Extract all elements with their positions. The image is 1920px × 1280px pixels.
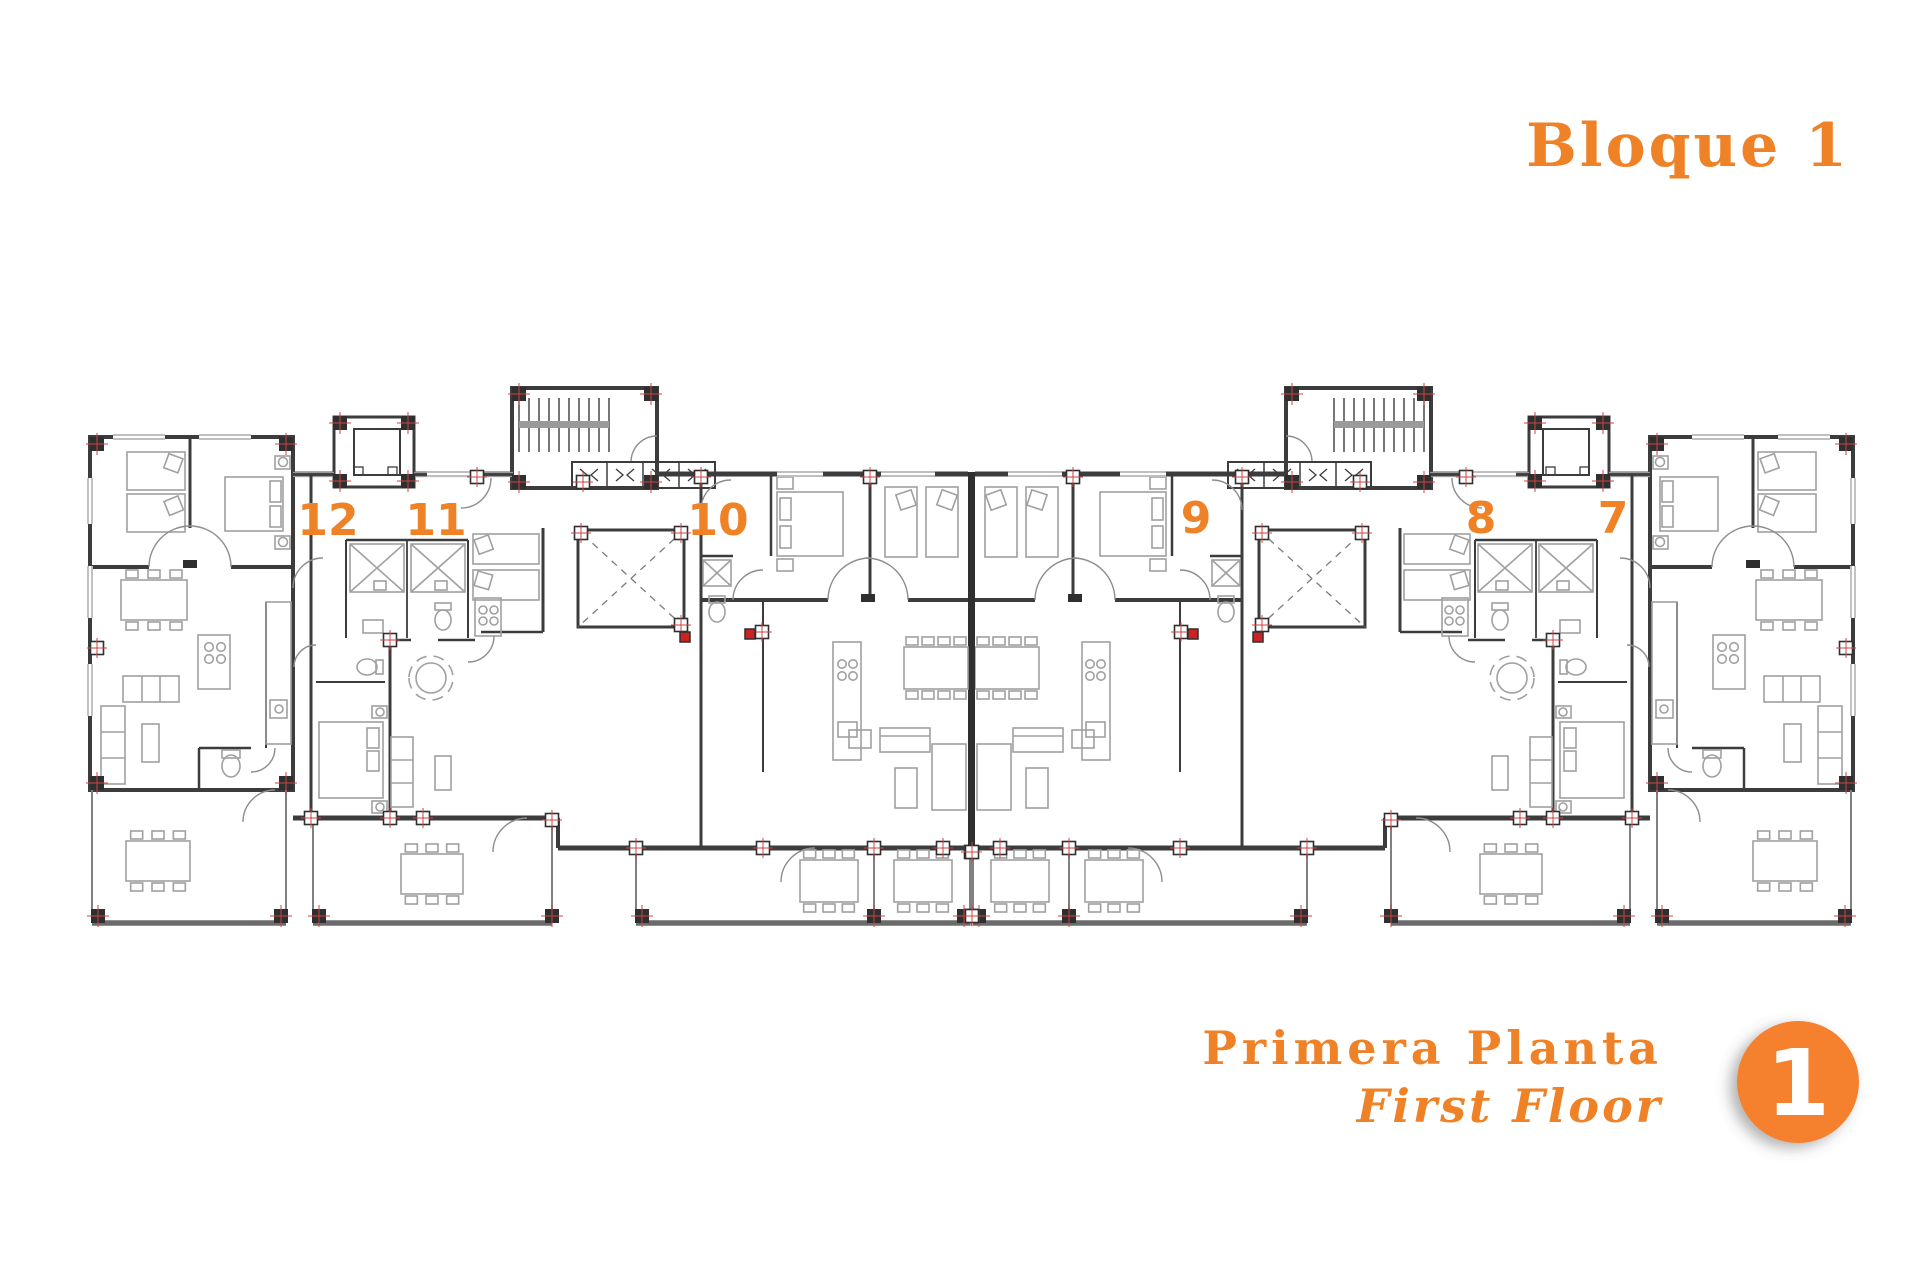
floor-badge-number: 1 xyxy=(1766,1030,1830,1137)
floor-label: Primera Planta First Floor xyxy=(1202,1021,1663,1133)
apartment-number-8: 8 xyxy=(1466,493,1497,544)
apartment-number-12: 12 xyxy=(297,495,358,546)
block-title: Bloque 1 xyxy=(1526,111,1850,181)
floor-label-english: First Floor xyxy=(1355,1079,1664,1133)
apartment-numbers: 12 11 10 9 8 7 xyxy=(297,493,1628,546)
apartment-number-7: 7 xyxy=(1598,493,1629,544)
floor-label-spanish: Primera Planta xyxy=(1202,1021,1663,1075)
floorplan-page: 12 11 10 9 8 7 Bloque 1 Primera Planta F… xyxy=(0,0,1920,1280)
apartment-number-11: 11 xyxy=(405,495,466,546)
light-well xyxy=(1259,530,1365,627)
floorplan-canvas: 12 11 10 9 8 7 Bloque 1 Primera Planta F… xyxy=(0,0,1920,1280)
apartment-number-10: 10 xyxy=(687,495,748,546)
terraces xyxy=(973,790,1851,923)
building-left-half xyxy=(86,383,982,927)
floor-badge: 1 xyxy=(1737,1021,1859,1143)
apartment-number-9: 9 xyxy=(1181,493,1212,544)
building-right-half xyxy=(961,383,1857,927)
apt8-furniture xyxy=(1404,534,1624,813)
